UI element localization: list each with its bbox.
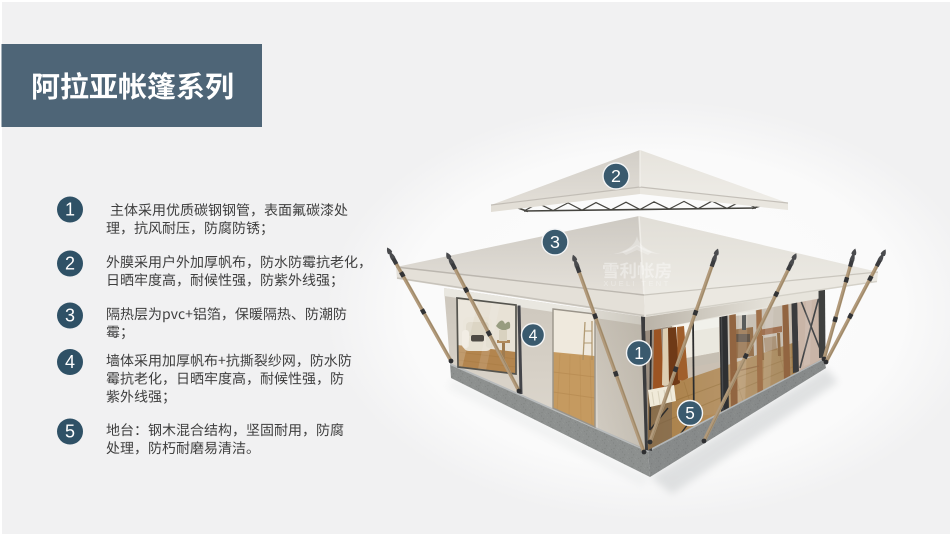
svg-text:4: 4 [529, 327, 538, 344]
svg-text:3: 3 [65, 306, 75, 326]
svg-text:XUELI TENT: XUELI TENT [603, 279, 670, 288]
svg-text:2: 2 [65, 254, 75, 274]
svg-text:5: 5 [685, 403, 695, 423]
svg-text:1: 1 [634, 343, 644, 363]
svg-text:1: 1 [65, 200, 75, 220]
svg-text:5: 5 [65, 422, 75, 442]
svg-text:3: 3 [550, 232, 560, 252]
svg-text:2: 2 [611, 166, 621, 186]
svg-text:4: 4 [65, 352, 75, 372]
